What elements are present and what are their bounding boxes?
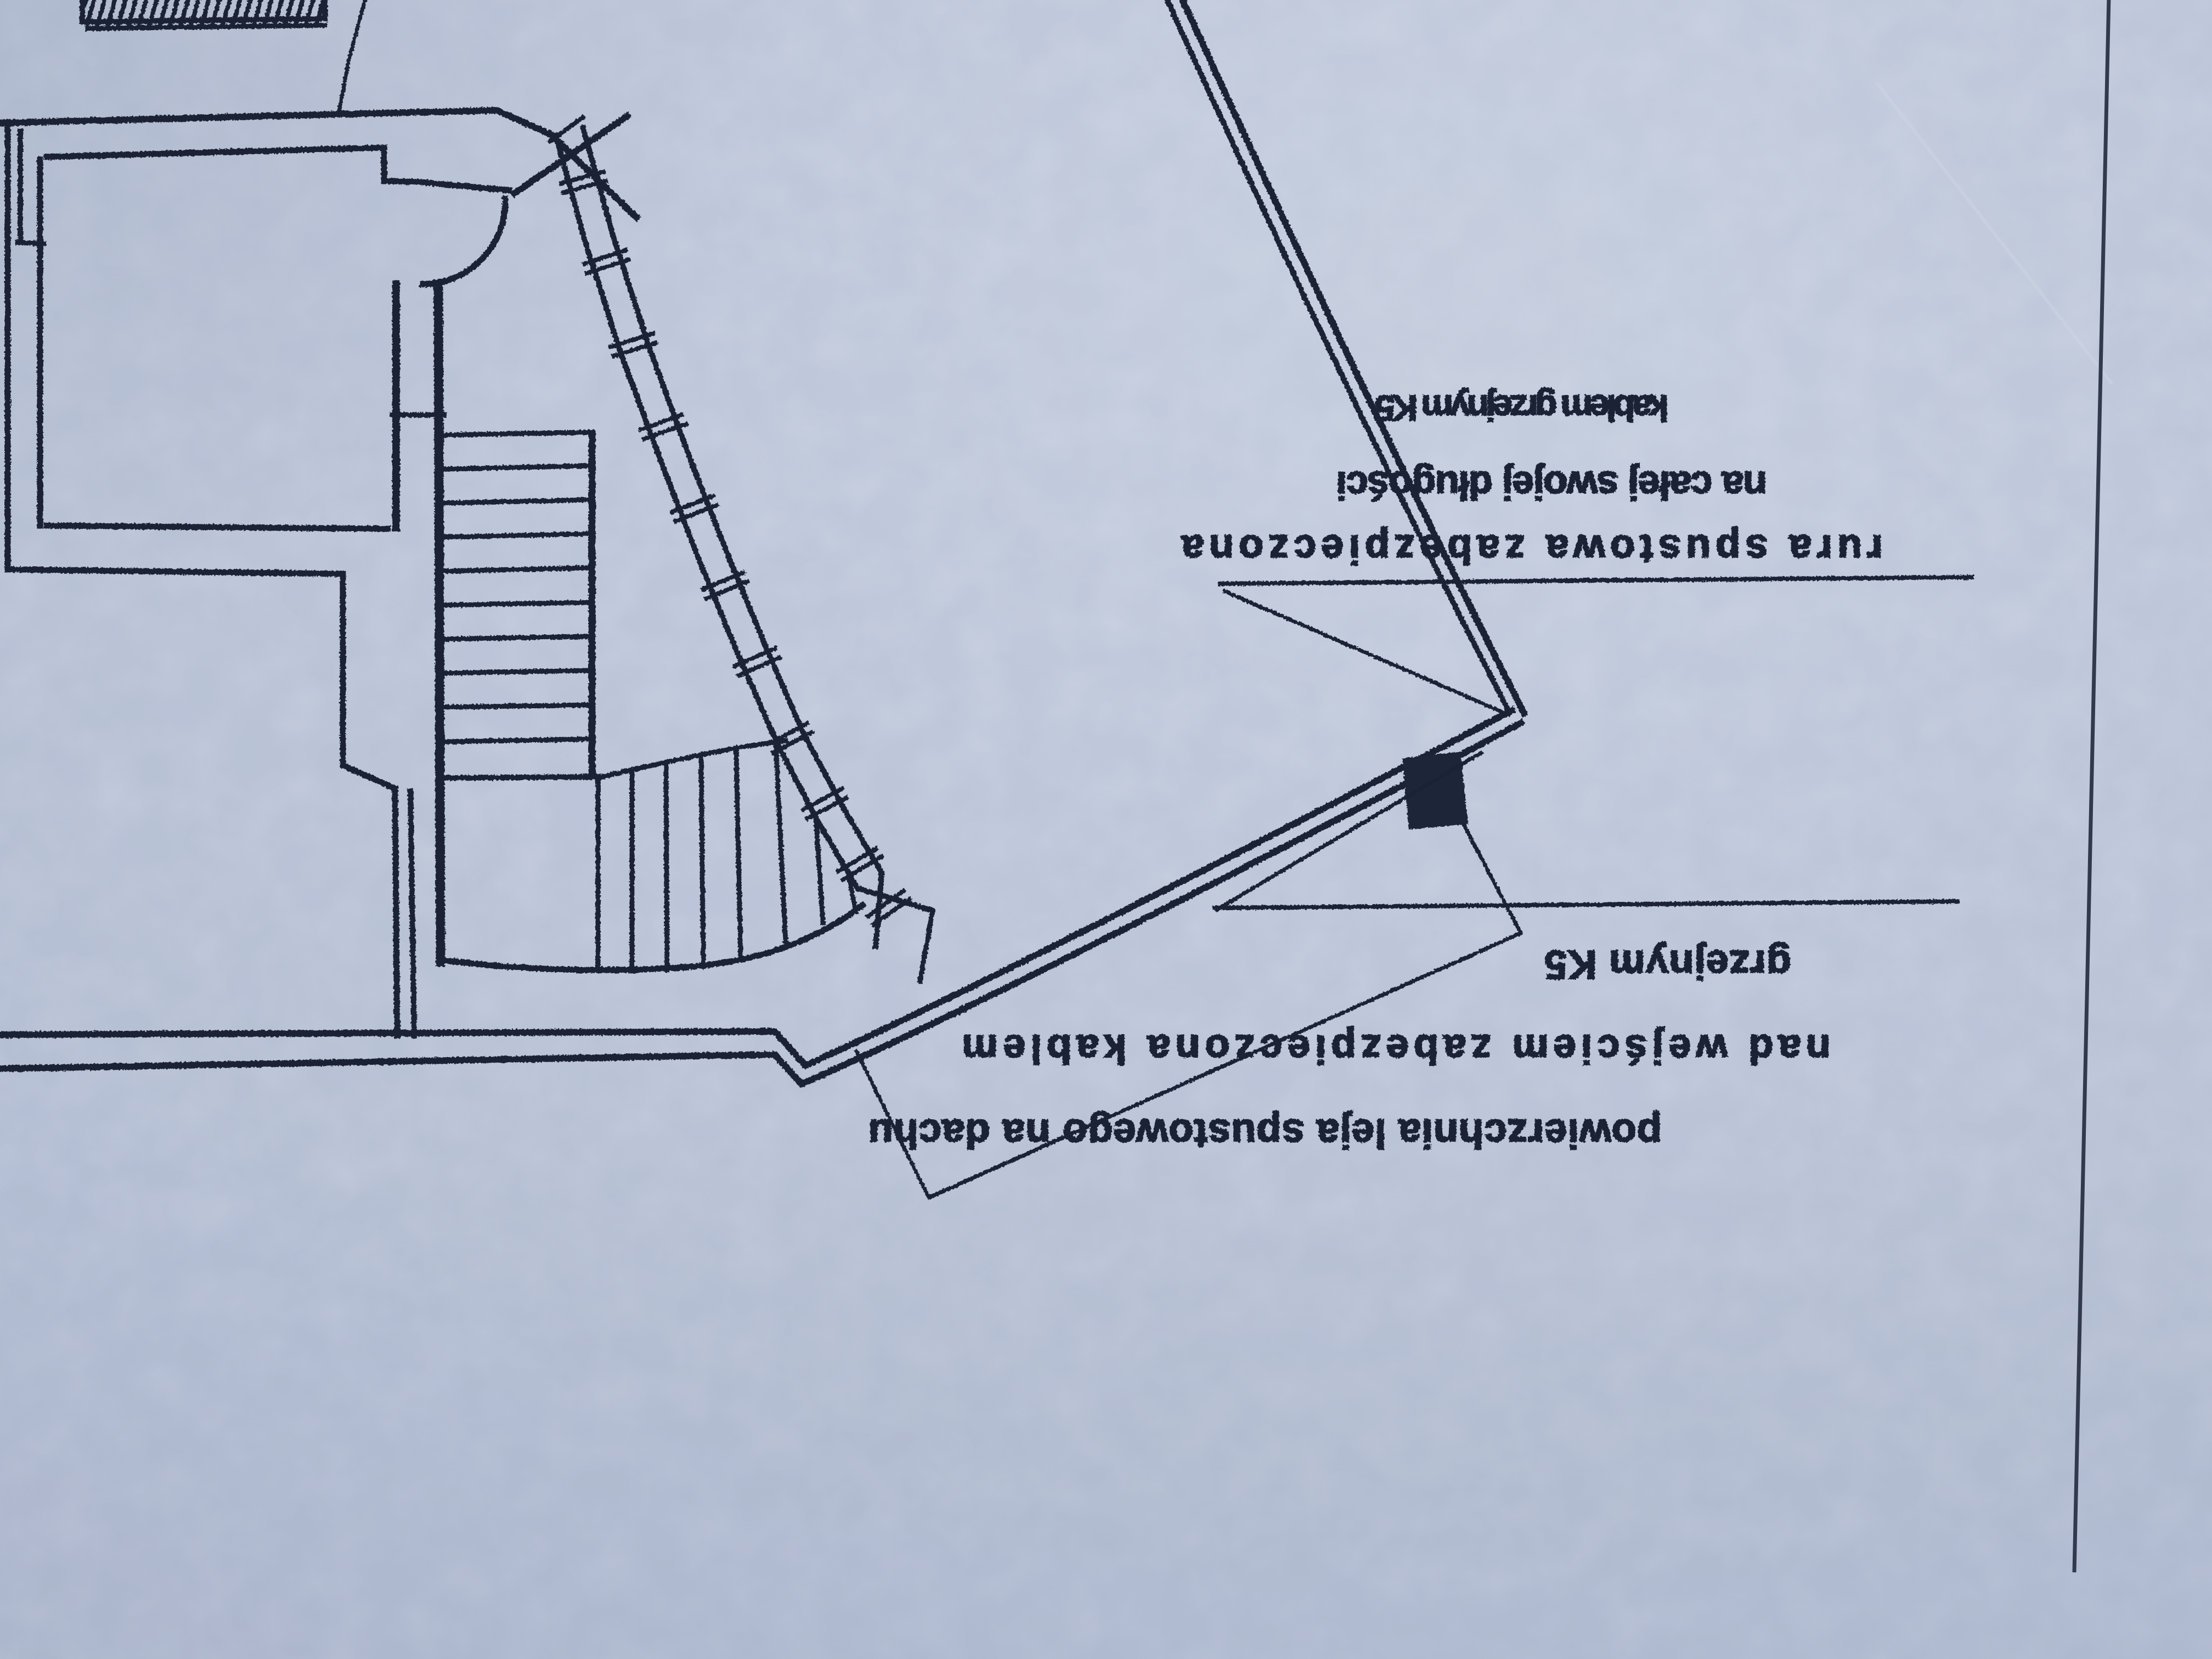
svg-text:grzejnym K5: grzejnym K5 <box>1544 942 1791 988</box>
svg-text:nad wejściem zabezpieczona kab: nad wejściem zabezpieczona kablem <box>957 1026 1831 1072</box>
svg-text:kablem grzejnym K5: kablem grzejnym K5 <box>1375 388 1669 428</box>
svg-text:na całej swojej długości: na całej swojej długości <box>1337 463 1767 507</box>
svg-text:powierzchnia leja spustowego n: powierzchnia leja spustowego na dachu <box>868 1111 1662 1156</box>
svg-text:rura spustowa zabezpieczona: rura spustowa zabezpieczona <box>1177 527 1883 572</box>
